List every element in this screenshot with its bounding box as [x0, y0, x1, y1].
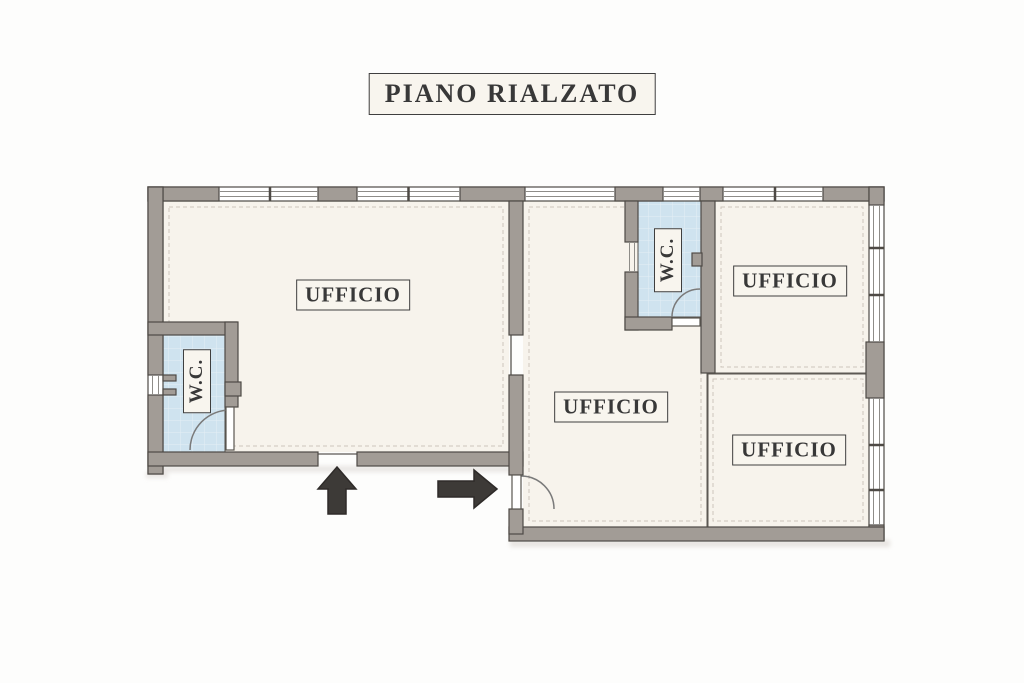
- room-label-wc-top: W.C.: [654, 228, 682, 292]
- wall-middle-vs-right: [701, 201, 715, 373]
- room-label-office-middle: UFFICIO: [554, 392, 668, 423]
- wc-top-wall-bottom: [625, 317, 672, 330]
- room-label-office-top-right: UFFICIO: [733, 266, 847, 297]
- wc-left-wall-stub: [225, 382, 241, 396]
- entrance-arrow-up-icon: [318, 467, 356, 514]
- door-leaf: [672, 318, 700, 326]
- room-label-office-left: UFFICIO: [296, 280, 410, 311]
- window-reveal-stub: [163, 389, 176, 395]
- wc-top-wall-left-upper: [625, 201, 638, 242]
- entrance-arrow-right-icon: [438, 470, 497, 508]
- exterior-wall-bottom: [509, 527, 884, 541]
- entrance-arrows: [318, 467, 497, 514]
- exterior-wall-right: [866, 187, 884, 540]
- floor-offices-right: [707, 201, 869, 527]
- room-label-wc-left: W.C.: [183, 349, 211, 413]
- wc-left-wall-top: [148, 322, 237, 335]
- exterior-wall-top: [148, 187, 884, 201]
- window-reveal-stub: [163, 375, 176, 381]
- door-leaf: [226, 407, 234, 450]
- plan-title: PIANO RIALZATO: [369, 73, 656, 115]
- floor-plan-page: PIANO RIALZATO UFFICIO UFFICIO UFFICIO U…: [0, 0, 1024, 683]
- room-label-office-bottom-right: UFFICIO: [732, 435, 846, 466]
- wc-top-wall-stub: [692, 253, 702, 266]
- door-leaf: [512, 475, 521, 509]
